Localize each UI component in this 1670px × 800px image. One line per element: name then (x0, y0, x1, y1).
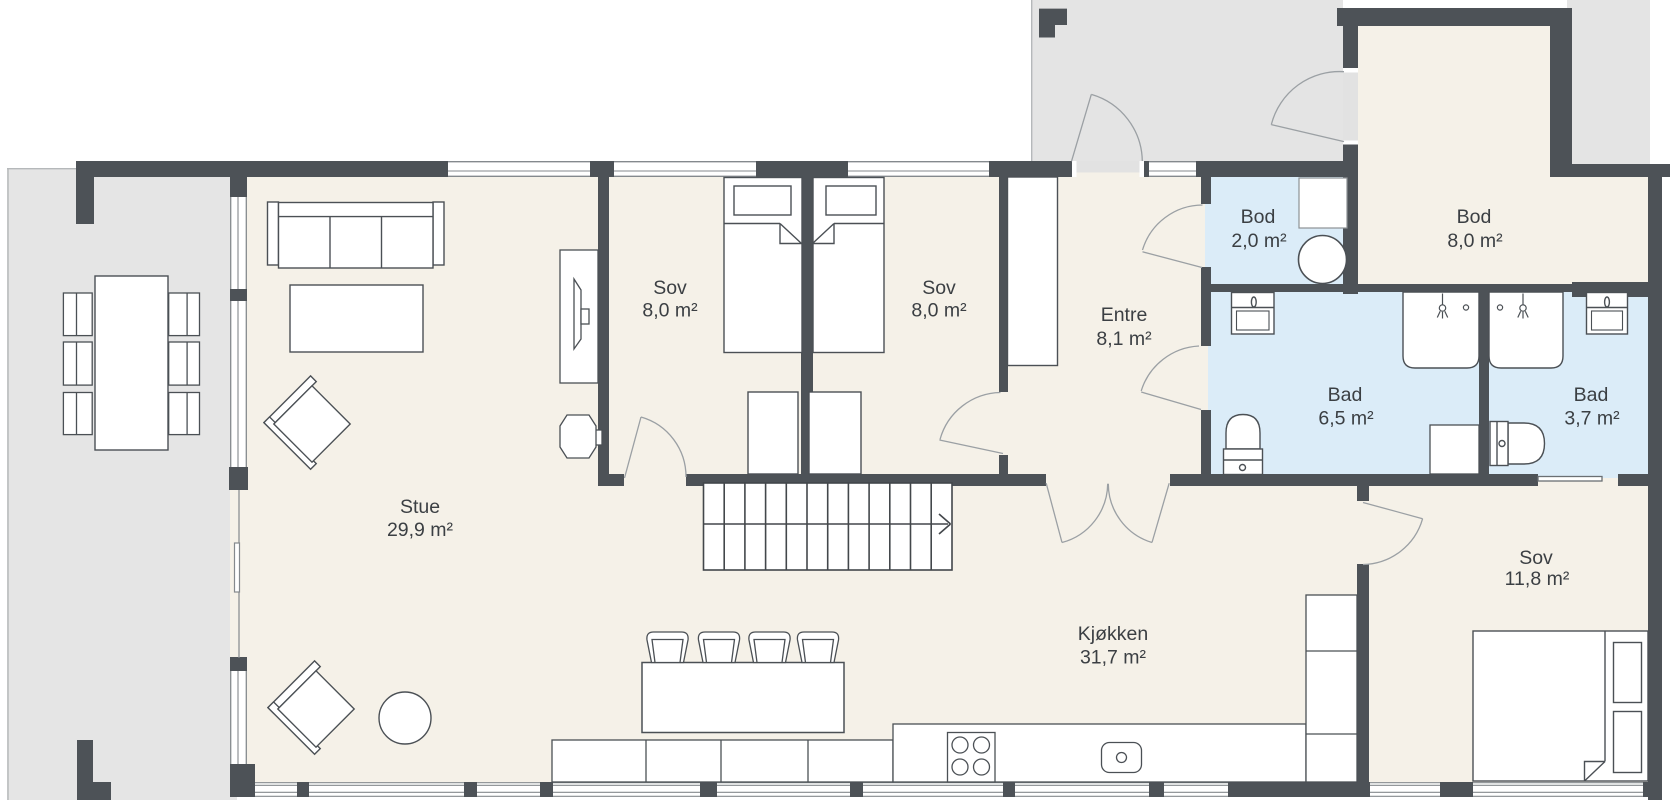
svg-text:8,1 m²: 8,1 m² (1096, 328, 1152, 350)
svg-text:Sov: Sov (922, 277, 956, 299)
svg-text:Kjøkken: Kjøkken (1078, 623, 1148, 645)
svg-text:8,0 m²: 8,0 m² (911, 300, 967, 322)
svg-text:Sov: Sov (653, 277, 687, 299)
svg-text:Stue: Stue (400, 496, 440, 518)
svg-text:2,0 m²: 2,0 m² (1231, 230, 1287, 252)
svg-text:Bod: Bod (1457, 206, 1492, 228)
svg-text:Sov: Sov (1519, 547, 1553, 569)
svg-text:Bad: Bad (1574, 384, 1609, 406)
svg-text:Bod: Bod (1241, 206, 1276, 228)
svg-text:3,7 m²: 3,7 m² (1564, 408, 1620, 430)
svg-text:Entre: Entre (1101, 304, 1148, 326)
svg-text:11,8 m²: 11,8 m² (1505, 568, 1570, 590)
svg-text:6,5 m²: 6,5 m² (1318, 408, 1374, 430)
svg-text:29,9 m²: 29,9 m² (387, 519, 454, 541)
svg-text:8,0 m²: 8,0 m² (642, 300, 698, 322)
svg-text:31,7 m²: 31,7 m² (1080, 647, 1147, 669)
svg-text:8,0 m²: 8,0 m² (1447, 230, 1503, 252)
svg-text:Bad: Bad (1328, 384, 1363, 406)
